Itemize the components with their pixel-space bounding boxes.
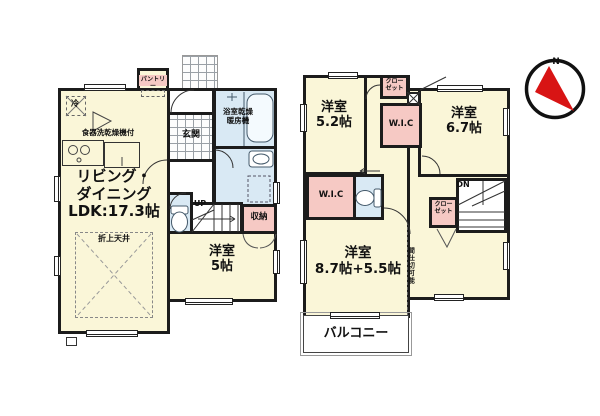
window: [434, 294, 464, 301]
ldk-label: リビング・ ダイニング LDK:17.3帖: [58, 168, 170, 221]
stairs1-up-label: UP: [189, 199, 211, 208]
compass-n-label: N: [549, 57, 563, 68]
meter-box: [66, 337, 77, 346]
kitchen-island: [104, 142, 140, 168]
toilet2-room: [353, 174, 384, 220]
balcony-label: バルコニー: [303, 326, 409, 341]
compass-circle: [527, 61, 584, 118]
bathroom-label: 浴室乾燥 暖房機: [213, 108, 263, 126]
washroom: [213, 146, 277, 207]
wic-top-label: W.I.C: [380, 119, 422, 129]
bedroom67-label: 洋室 6.7帖: [418, 106, 510, 137]
window: [273, 182, 280, 204]
floor-plan: パントリー 玄関 浴室乾燥 暖房機 UP 収納 洋室 5帖 冷 食器洗乾燥機付 …: [0, 0, 600, 416]
compass-north-arrow: [535, 66, 574, 111]
dishwasher-label: 食器洗乾燥機付: [62, 129, 154, 138]
coffered-ceiling-label: 折上天井: [75, 234, 153, 243]
bedroom52-label: 洋室 5.2帖: [303, 100, 365, 131]
storage-label: 収納: [241, 212, 277, 222]
window: [328, 72, 358, 79]
closet-mid-label: クロー ゼット: [429, 201, 458, 215]
wall-bedroom67-bottom: [418, 174, 510, 177]
kitchen-counter: [62, 140, 104, 166]
window: [330, 312, 380, 319]
window: [84, 84, 126, 91]
fridge-label: 冷: [68, 99, 82, 108]
window: [185, 298, 233, 305]
coffered-ceiling-area: [75, 232, 153, 318]
pantry-shelf: [141, 90, 165, 97]
pantry-label: パントリー: [139, 76, 167, 90]
window: [86, 330, 138, 337]
wic-left-label: W.I.C: [306, 190, 356, 200]
entry-porch-tiles: [182, 55, 218, 89]
stairs2-dn-label: DN: [452, 180, 474, 189]
window: [503, 242, 510, 270]
closet-top-label: クロー ゼット: [380, 78, 409, 92]
bedroom5-label: 洋室 5帖: [167, 244, 277, 275]
genkan-label: 玄関: [167, 130, 215, 141]
window: [437, 85, 483, 92]
shaft-box: [407, 92, 420, 105]
bedroom-main-label: 洋室 8.7帖+5.5帖: [306, 246, 410, 278]
window: [54, 256, 61, 276]
